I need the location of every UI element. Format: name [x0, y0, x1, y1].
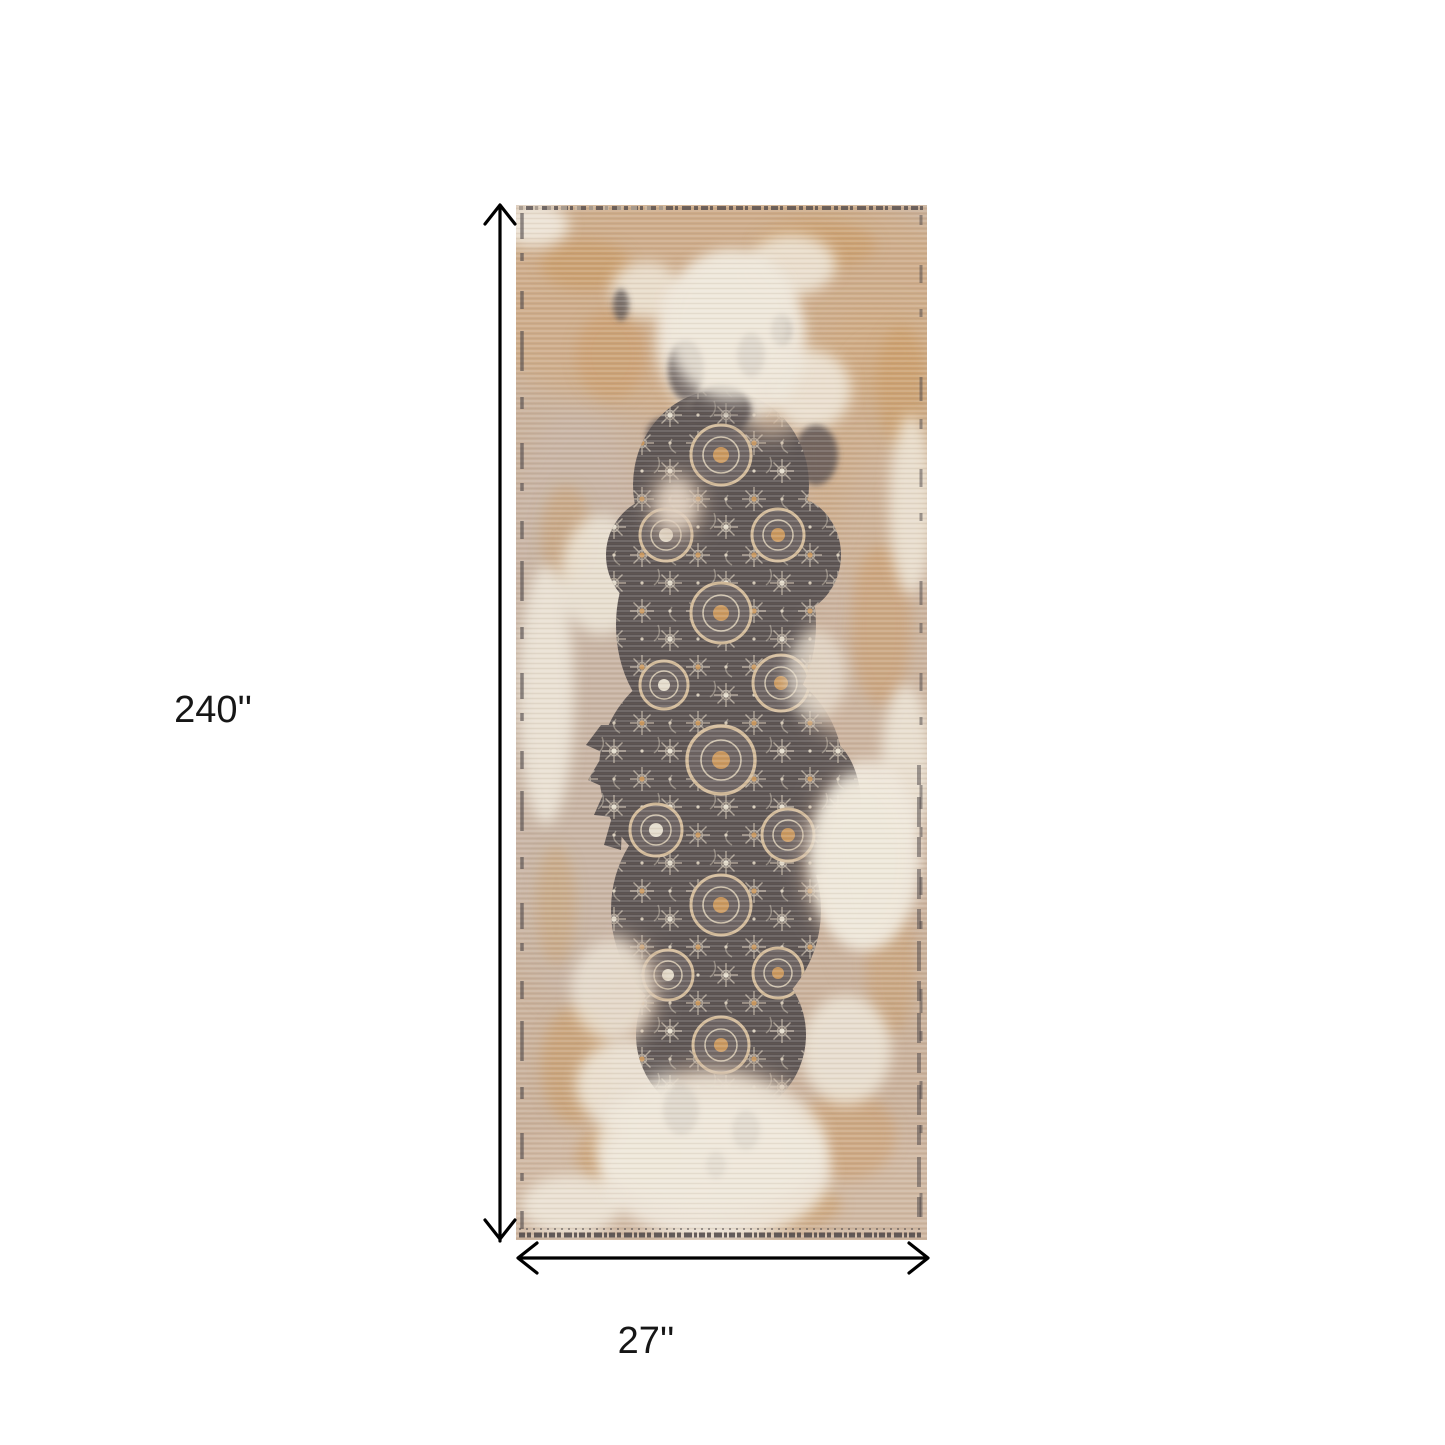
height-label: 240'' — [140, 691, 252, 729]
product-dimension-diagram: 240'' 27'' — [0, 0, 1445, 1445]
width-label: 27'' — [596, 1322, 696, 1360]
weave-texture — [516, 205, 927, 1240]
height-arrow — [478, 198, 522, 1250]
rug-image — [516, 205, 927, 1240]
width-arrow — [510, 1240, 936, 1276]
